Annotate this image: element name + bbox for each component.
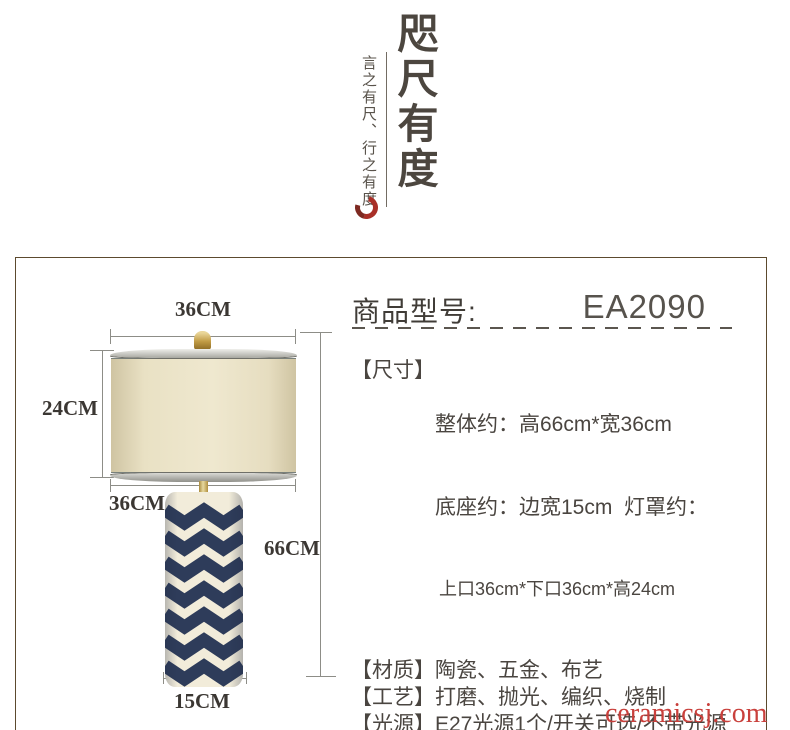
dim-tick [300,332,332,333]
hero-divider [386,52,387,207]
spec-size-line1: 整体约：高66cm*宽36cm [435,411,708,439]
model-label: 商品型号: [352,290,477,330]
model-header: 商品型号: EA2090 [352,288,730,328]
hero-subtitle: 言之有尺、行之有度 [357,55,379,208]
dim-label-base: 15CM [160,689,244,713]
lamp-finial [194,331,211,350]
spec-size-line2: 底座约：边宽15cm 灯罩约： [435,494,708,522]
hero-title: 咫尺有度 [391,12,437,192]
dim-tick [295,329,296,344]
watermark: ceramicsj.com [605,698,767,730]
dim-tick [306,676,336,677]
spec-value-material: 陶瓷、五金、布艺 [435,657,603,684]
dim-label-shade-top: 36CM [160,297,246,321]
dim-tick [110,329,111,344]
model-number: EA2090 [583,288,706,326]
spec-label-craft: 【工艺】 [351,684,435,711]
spec-value-size: 整体约：高66cm*宽36cm 底座约：边宽15cm 灯罩约： 上口36cm*下… [435,357,708,657]
spec-row-size: 【尺寸】 整体约：高66cm*宽36cm 底座约：边宽15cm 灯罩约： 上口3… [351,357,771,657]
dim-label-total-height: 66CM [259,536,325,560]
dim-line-total-height [320,332,321,677]
dim-tick [163,672,164,684]
spec-label-size: 【尺寸】 [351,357,435,657]
spec-row-material: 【材质】 陶瓷、五金、布艺 [351,657,771,684]
spec-list: 【尺寸】 整体约：高66cm*宽36cm 底座约：边宽15cm 灯罩约： 上口3… [351,357,771,730]
lamp-shade-top-rim [110,349,297,358]
dim-label-shade-bottom: 36CM [99,491,175,515]
cylinder-shading [165,492,243,687]
lamp-base-cylinder [165,492,243,687]
spec-label-material: 【材质】 [351,657,435,684]
header-dashed-underline [352,327,732,329]
spec-size-line3: 上口36cm*下口36cm*高24cm [435,576,708,602]
spec-label-light-source: 【光源】 [351,711,435,730]
product-spec-page: 咫尺有度 言之有尺、行之有度 36CM 24CM 36CM 66CM 15CM [0,0,790,730]
dim-tick [246,672,247,684]
dim-label-shade-height: 24CM [32,396,108,420]
lamp-shade-fabric [111,358,296,473]
lamp-shade [110,349,297,482]
